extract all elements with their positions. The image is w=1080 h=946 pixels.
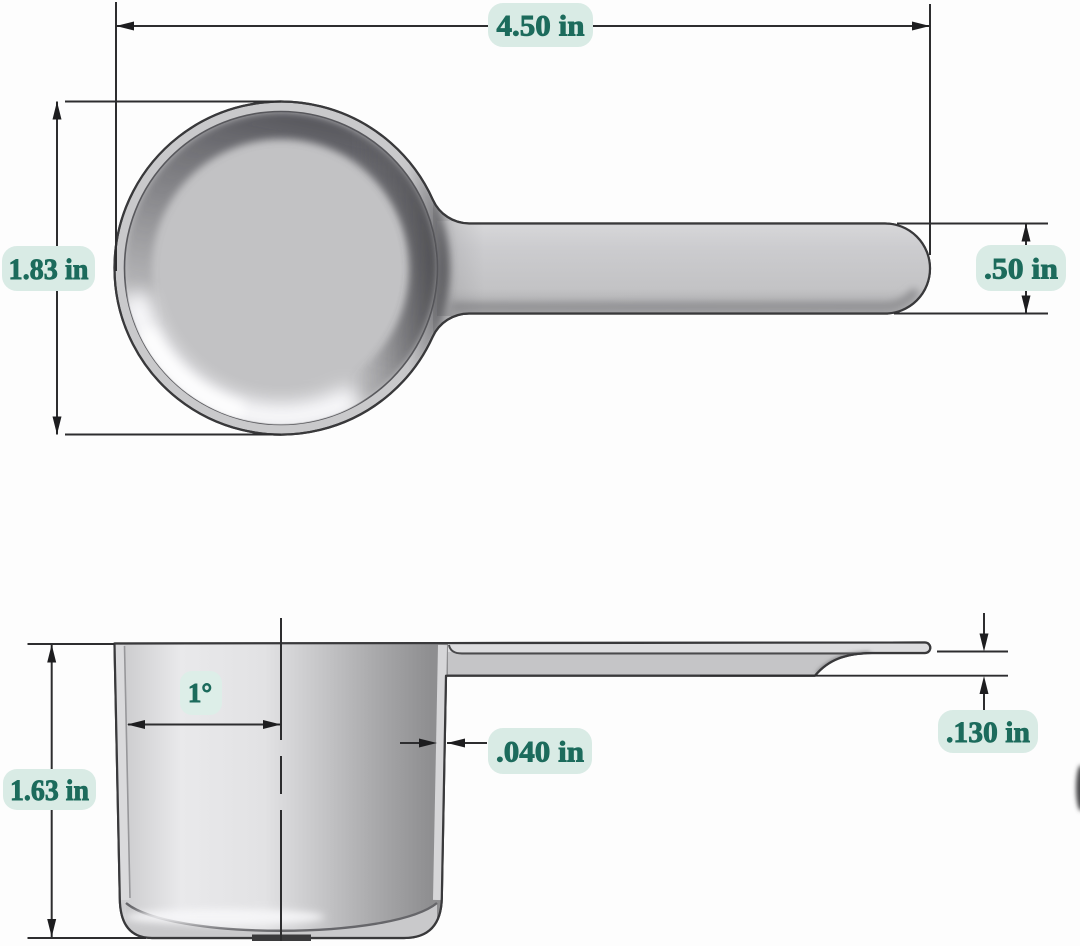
svg-text:4.50 in: 4.50 in [497, 10, 585, 43]
svg-text:.50 in: .50 in [984, 253, 1058, 286]
svg-text:1°: 1° [188, 678, 212, 708]
svg-text:1.63 in: 1.63 in [10, 774, 89, 807]
svg-text:.040 in: .040 in [496, 736, 584, 769]
svg-text:1.83 in: 1.83 in [9, 253, 89, 286]
svg-text:.130 in: .130 in [946, 716, 1030, 749]
